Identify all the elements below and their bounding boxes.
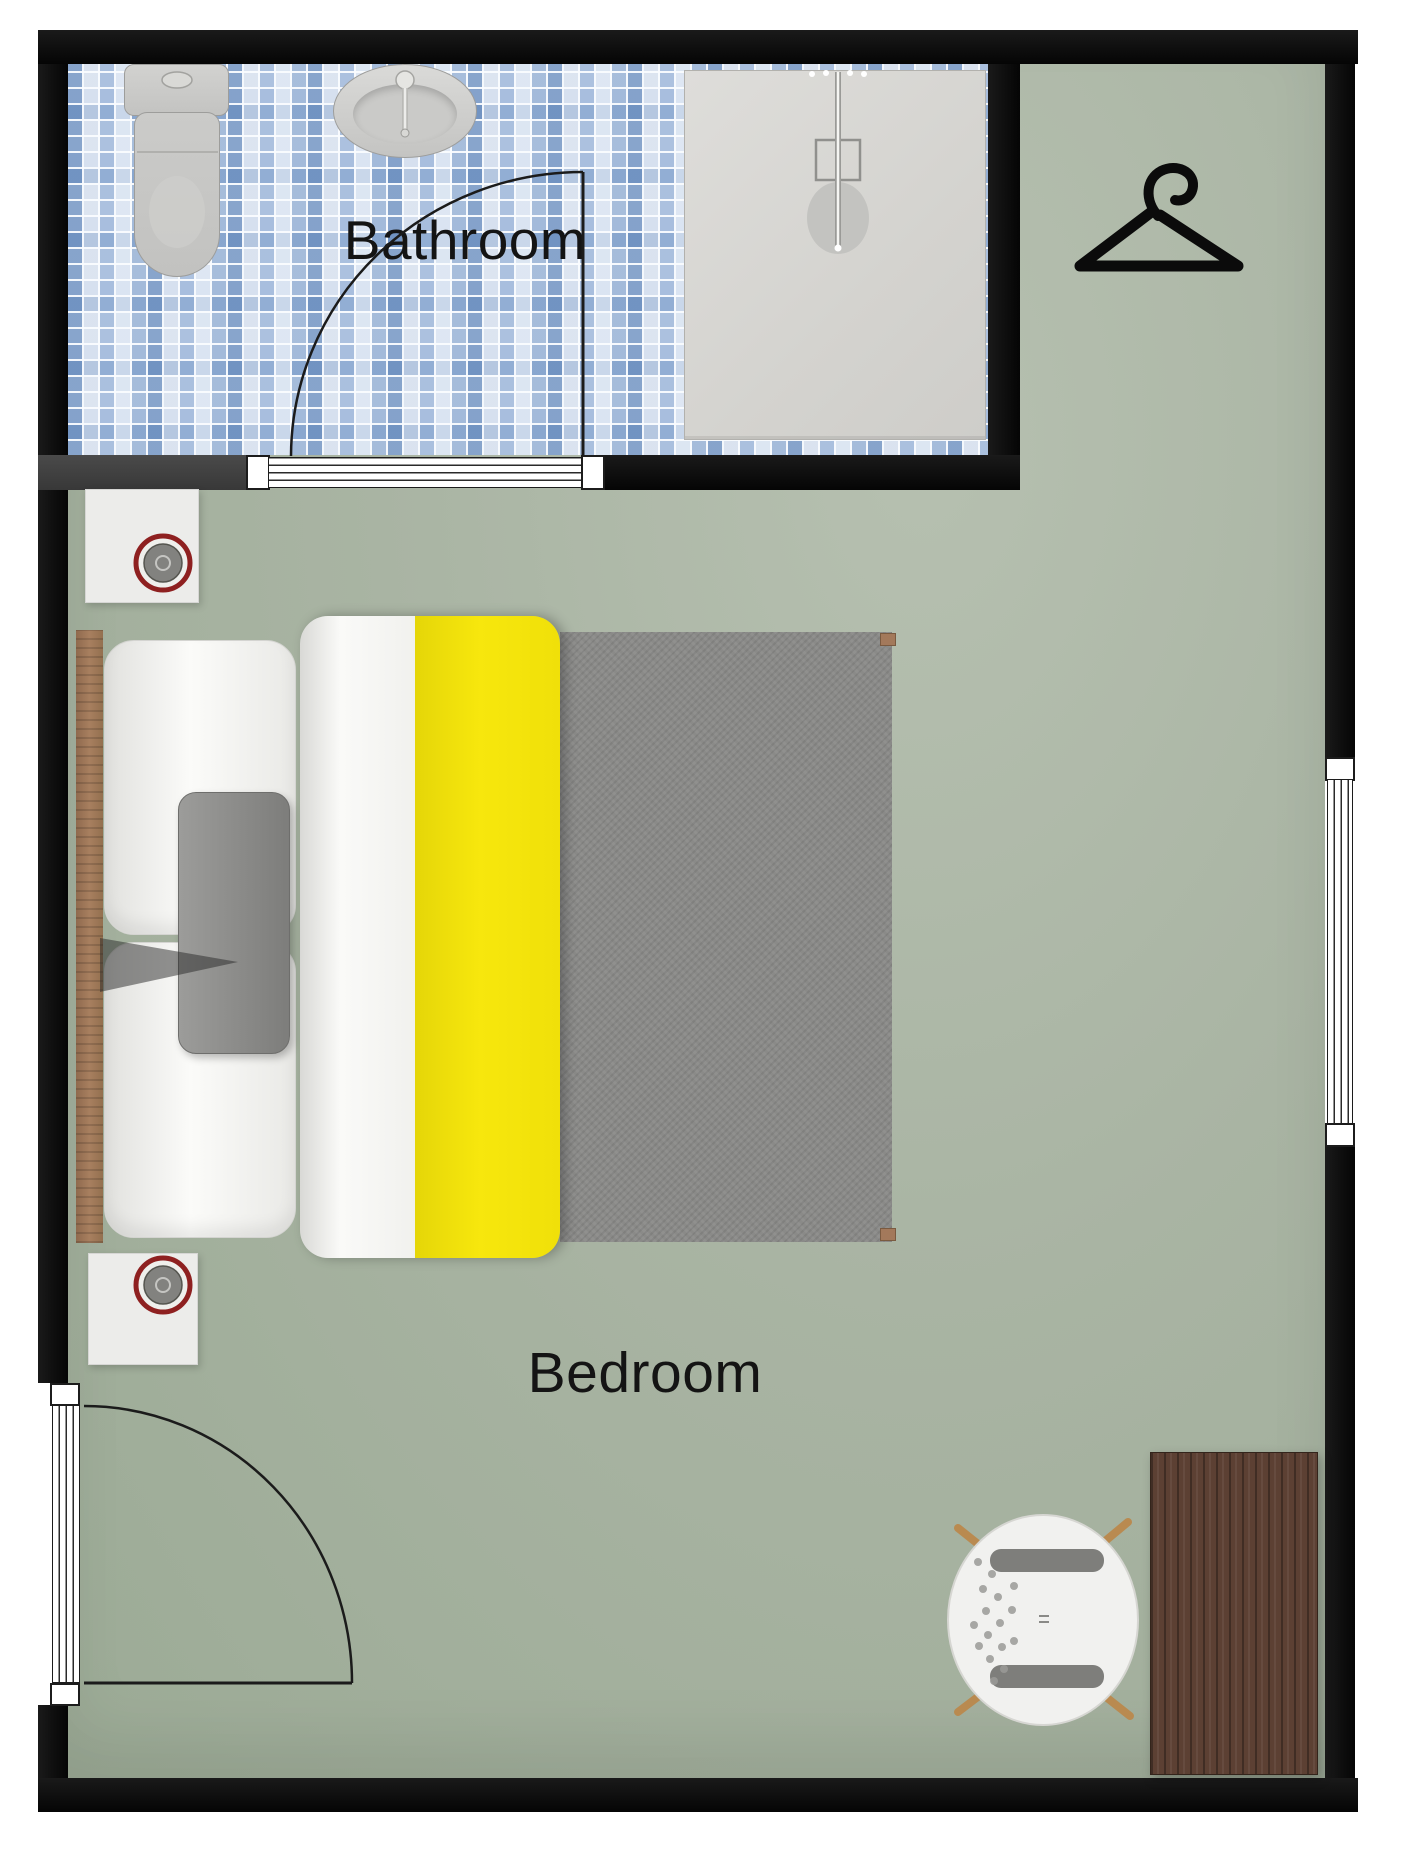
bed-headboard <box>76 630 103 1243</box>
bathroom-partition-glazing <box>268 457 583 488</box>
wall-bathroom-south-left <box>38 455 246 490</box>
bed-blanket-gray <box>560 632 892 1242</box>
entrance-door-jamb-bottom <box>50 1683 80 1706</box>
wall-left-upper <box>38 64 68 1383</box>
toilet-bowl <box>134 112 220 277</box>
bed-frame-corner-top <box>880 633 896 646</box>
right-window-jamb-bottom <box>1325 1123 1355 1147</box>
duvet-yellow-half <box>415 616 560 1258</box>
bed-duvet <box>300 616 560 1258</box>
right-window-jamb-top <box>1325 757 1355 781</box>
duvet-white-half <box>300 616 415 1258</box>
wall-right-upper <box>1325 64 1355 757</box>
nightstand-bottom <box>88 1253 198 1365</box>
bathroom-partition-jamb-left <box>246 455 270 490</box>
bed-frame-corner-bottom <box>880 1228 896 1241</box>
wall-bathroom-south-right <box>605 455 1020 490</box>
entrance-door-leafline <box>52 1405 80 1683</box>
shower-pan <box>684 70 986 440</box>
bathroom-label: Bathroom <box>310 208 620 272</box>
wall-right-lower <box>1325 1145 1355 1778</box>
sink-bowl <box>353 84 457 144</box>
wall-bottom <box>38 1778 1358 1812</box>
bedroom-label: Bedroom <box>490 1340 800 1406</box>
wall-top <box>38 30 1358 64</box>
right-window-glazing <box>1327 779 1353 1125</box>
floor-plan: Bathroom Bedroom <box>0 0 1418 1862</box>
bathroom-partition-jamb-right <box>581 455 605 490</box>
desk <box>1150 1452 1318 1775</box>
wall-bathroom-divider <box>988 64 1020 490</box>
bed-accent-pillow <box>178 792 290 1054</box>
nightstand-top <box>85 489 199 603</box>
entrance-door-jamb-top <box>50 1383 80 1406</box>
wall-left-lower <box>38 1705 68 1778</box>
toilet-tank <box>124 64 229 116</box>
